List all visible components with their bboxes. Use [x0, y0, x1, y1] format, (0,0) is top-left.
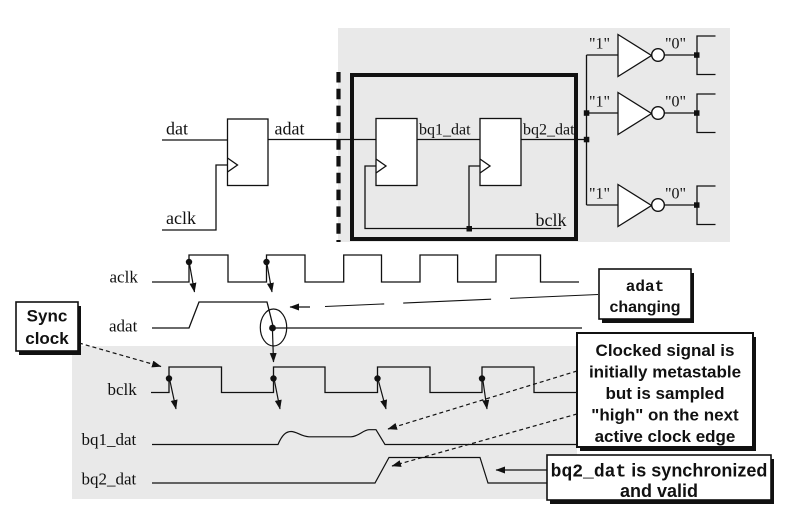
svg-text:bq2_dat: bq2_dat	[82, 470, 137, 489]
svg-text:bclk: bclk	[536, 210, 567, 230]
svg-text:bclk: bclk	[108, 380, 138, 399]
svg-text:dat: dat	[166, 119, 188, 139]
svg-text:active clock edge: active clock edge	[595, 427, 736, 446]
svg-text:adat: adat	[275, 119, 305, 139]
svg-text:adat: adat	[109, 317, 138, 336]
svg-text:changing: changing	[609, 299, 680, 316]
svg-text:bq2_dat: bq2_dat	[523, 122, 575, 139]
svg-text:aclk: aclk	[166, 208, 196, 228]
svg-text:adat: adat	[626, 278, 664, 296]
svg-text:"0": "0"	[665, 36, 686, 53]
svg-text:bq1_dat: bq1_dat	[82, 430, 137, 449]
svg-text:Clocked signal is: Clocked signal is	[596, 341, 735, 360]
svg-text:clock: clock	[25, 329, 69, 348]
svg-text:and valid: and valid	[620, 481, 698, 501]
svg-text:aclk: aclk	[110, 268, 139, 287]
svg-text:bq2_dat is synchronized: bq2_dat is synchronized	[551, 461, 768, 483]
svg-text:"1": "1"	[589, 186, 610, 203]
svg-text:bq1_dat: bq1_dat	[419, 122, 471, 139]
svg-text:but is sampled: but is sampled	[605, 384, 724, 403]
svg-text:initially metastable: initially metastable	[589, 363, 741, 382]
svg-text:"0": "0"	[665, 94, 686, 111]
svg-text:"high" on the next: "high" on the next	[591, 406, 739, 425]
svg-text:Sync: Sync	[27, 307, 68, 326]
svg-text:"1": "1"	[589, 36, 610, 53]
svg-text:"0": "0"	[665, 186, 686, 203]
svg-text:"1": "1"	[589, 94, 610, 111]
